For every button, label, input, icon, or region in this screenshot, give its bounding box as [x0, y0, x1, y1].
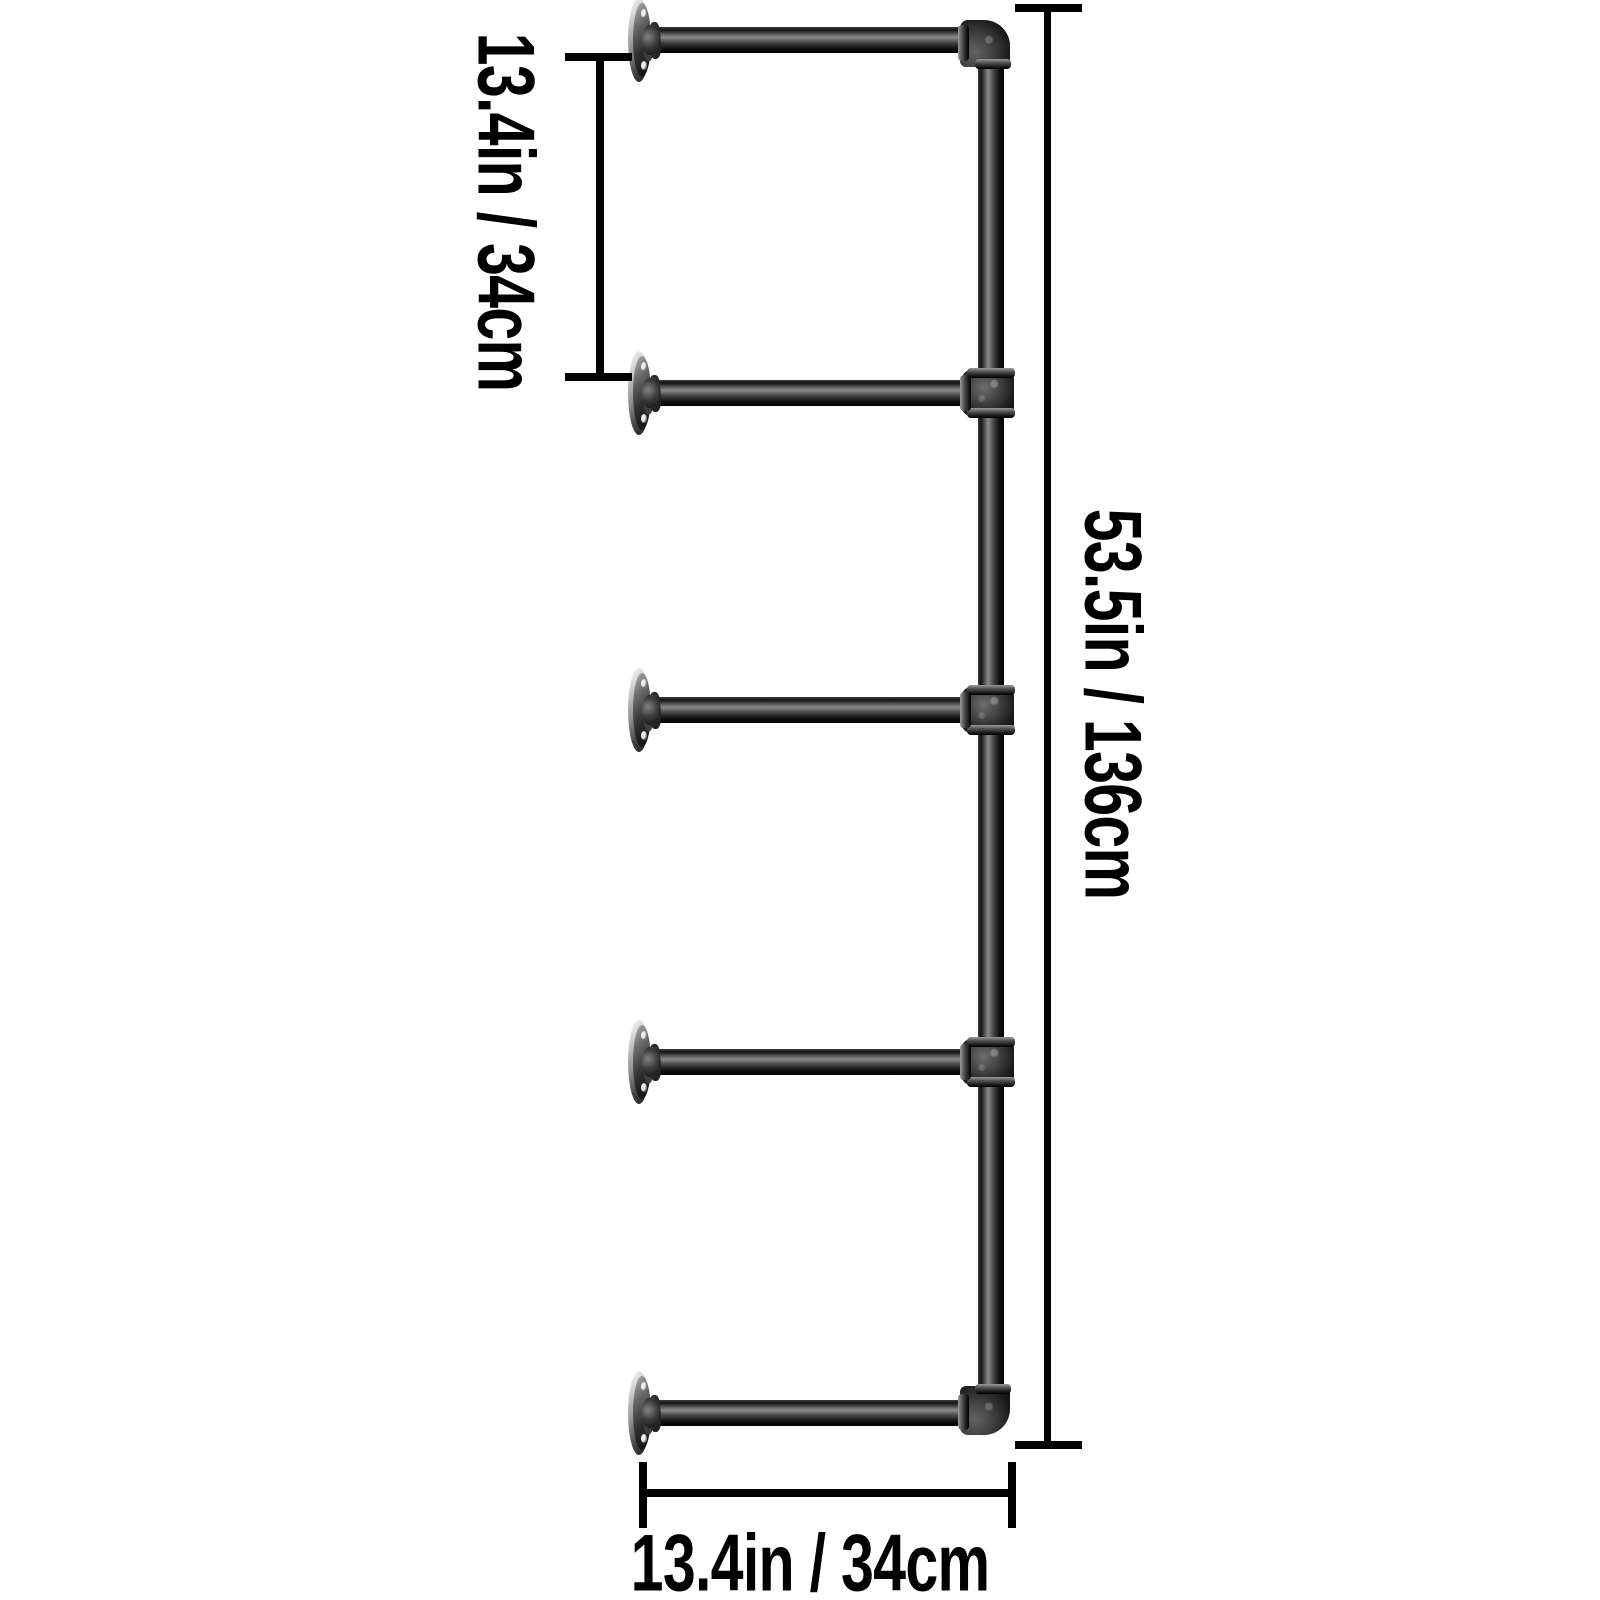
wall-flange-icon [628, 1371, 664, 1455]
fitting-collar [967, 1077, 1015, 1087]
flange-hub [642, 1047, 659, 1077]
wall-flange-icon [628, 351, 664, 435]
elbow-fitting-top [960, 20, 1010, 67]
shelf-arm-pipe [650, 27, 976, 53]
dimension-label-shelf-spacing: 13.4in / 34cm [465, 33, 546, 392]
flange-hub [642, 1398, 659, 1428]
dimension-label-total-height: 53.5in / 136cm [1072, 509, 1153, 900]
flange-bolt-hole [641, 362, 647, 371]
flange-bolt-hole [641, 414, 647, 423]
dimension-tick [1008, 1462, 1016, 1528]
dimension-line [1044, 8, 1051, 1445]
flange-hub [642, 25, 659, 55]
fitting-collar [975, 1384, 1011, 1394]
shelf-arm-pipe [650, 380, 976, 406]
flange-bolt-hole [641, 731, 647, 740]
fitting-collar [960, 692, 971, 728]
flange-bolt-hole [641, 679, 647, 688]
flange-bolt-hole [641, 1031, 647, 1040]
dimension-line [596, 57, 604, 381]
flange-bolt-hole [641, 1382, 647, 1391]
flange-bolt-hole [641, 9, 647, 18]
dimension-line [643, 1489, 1012, 1497]
wall-flange-icon [628, 1020, 664, 1104]
fitting-collar [967, 368, 1015, 378]
dimension-tick [1015, 1441, 1082, 1449]
fitting-collar [975, 59, 1011, 69]
flange-bolt-hole [641, 1434, 647, 1443]
fitting-collar [967, 408, 1015, 418]
dimension-tick [565, 53, 632, 61]
flange-hub [642, 695, 659, 725]
pipe-shelf-dimension-diagram: 13.4in / 34cm 53.5in / 136cm 13.4in / 34… [0, 0, 1600, 1600]
flange-bolt-hole [641, 1083, 647, 1092]
wall-flange-icon [628, 0, 664, 82]
shelf-arm-pipe [650, 1049, 976, 1075]
fitting-collar [967, 1037, 1015, 1047]
fitting-collar [960, 1044, 971, 1080]
wall-flange-icon [628, 668, 664, 752]
fitting-collar [967, 685, 1015, 695]
shelf-arm-pipe [650, 697, 976, 723]
fitting-collar [958, 1394, 969, 1430]
dimension-tick [565, 373, 632, 381]
fitting-collar [958, 25, 969, 61]
dimension-tick [1015, 4, 1082, 12]
tee-fitting [962, 687, 1014, 733]
tee-fitting [962, 1039, 1014, 1085]
tee-fitting [962, 370, 1014, 416]
shelf-arm-pipe [650, 1400, 976, 1426]
dimension-label-arm-depth: 13.4in / 34cm [631, 1524, 990, 1600]
flange-bolt-hole [641, 61, 647, 70]
flange-hub [642, 378, 659, 408]
fitting-collar [967, 725, 1015, 735]
fitting-collar [960, 375, 971, 411]
